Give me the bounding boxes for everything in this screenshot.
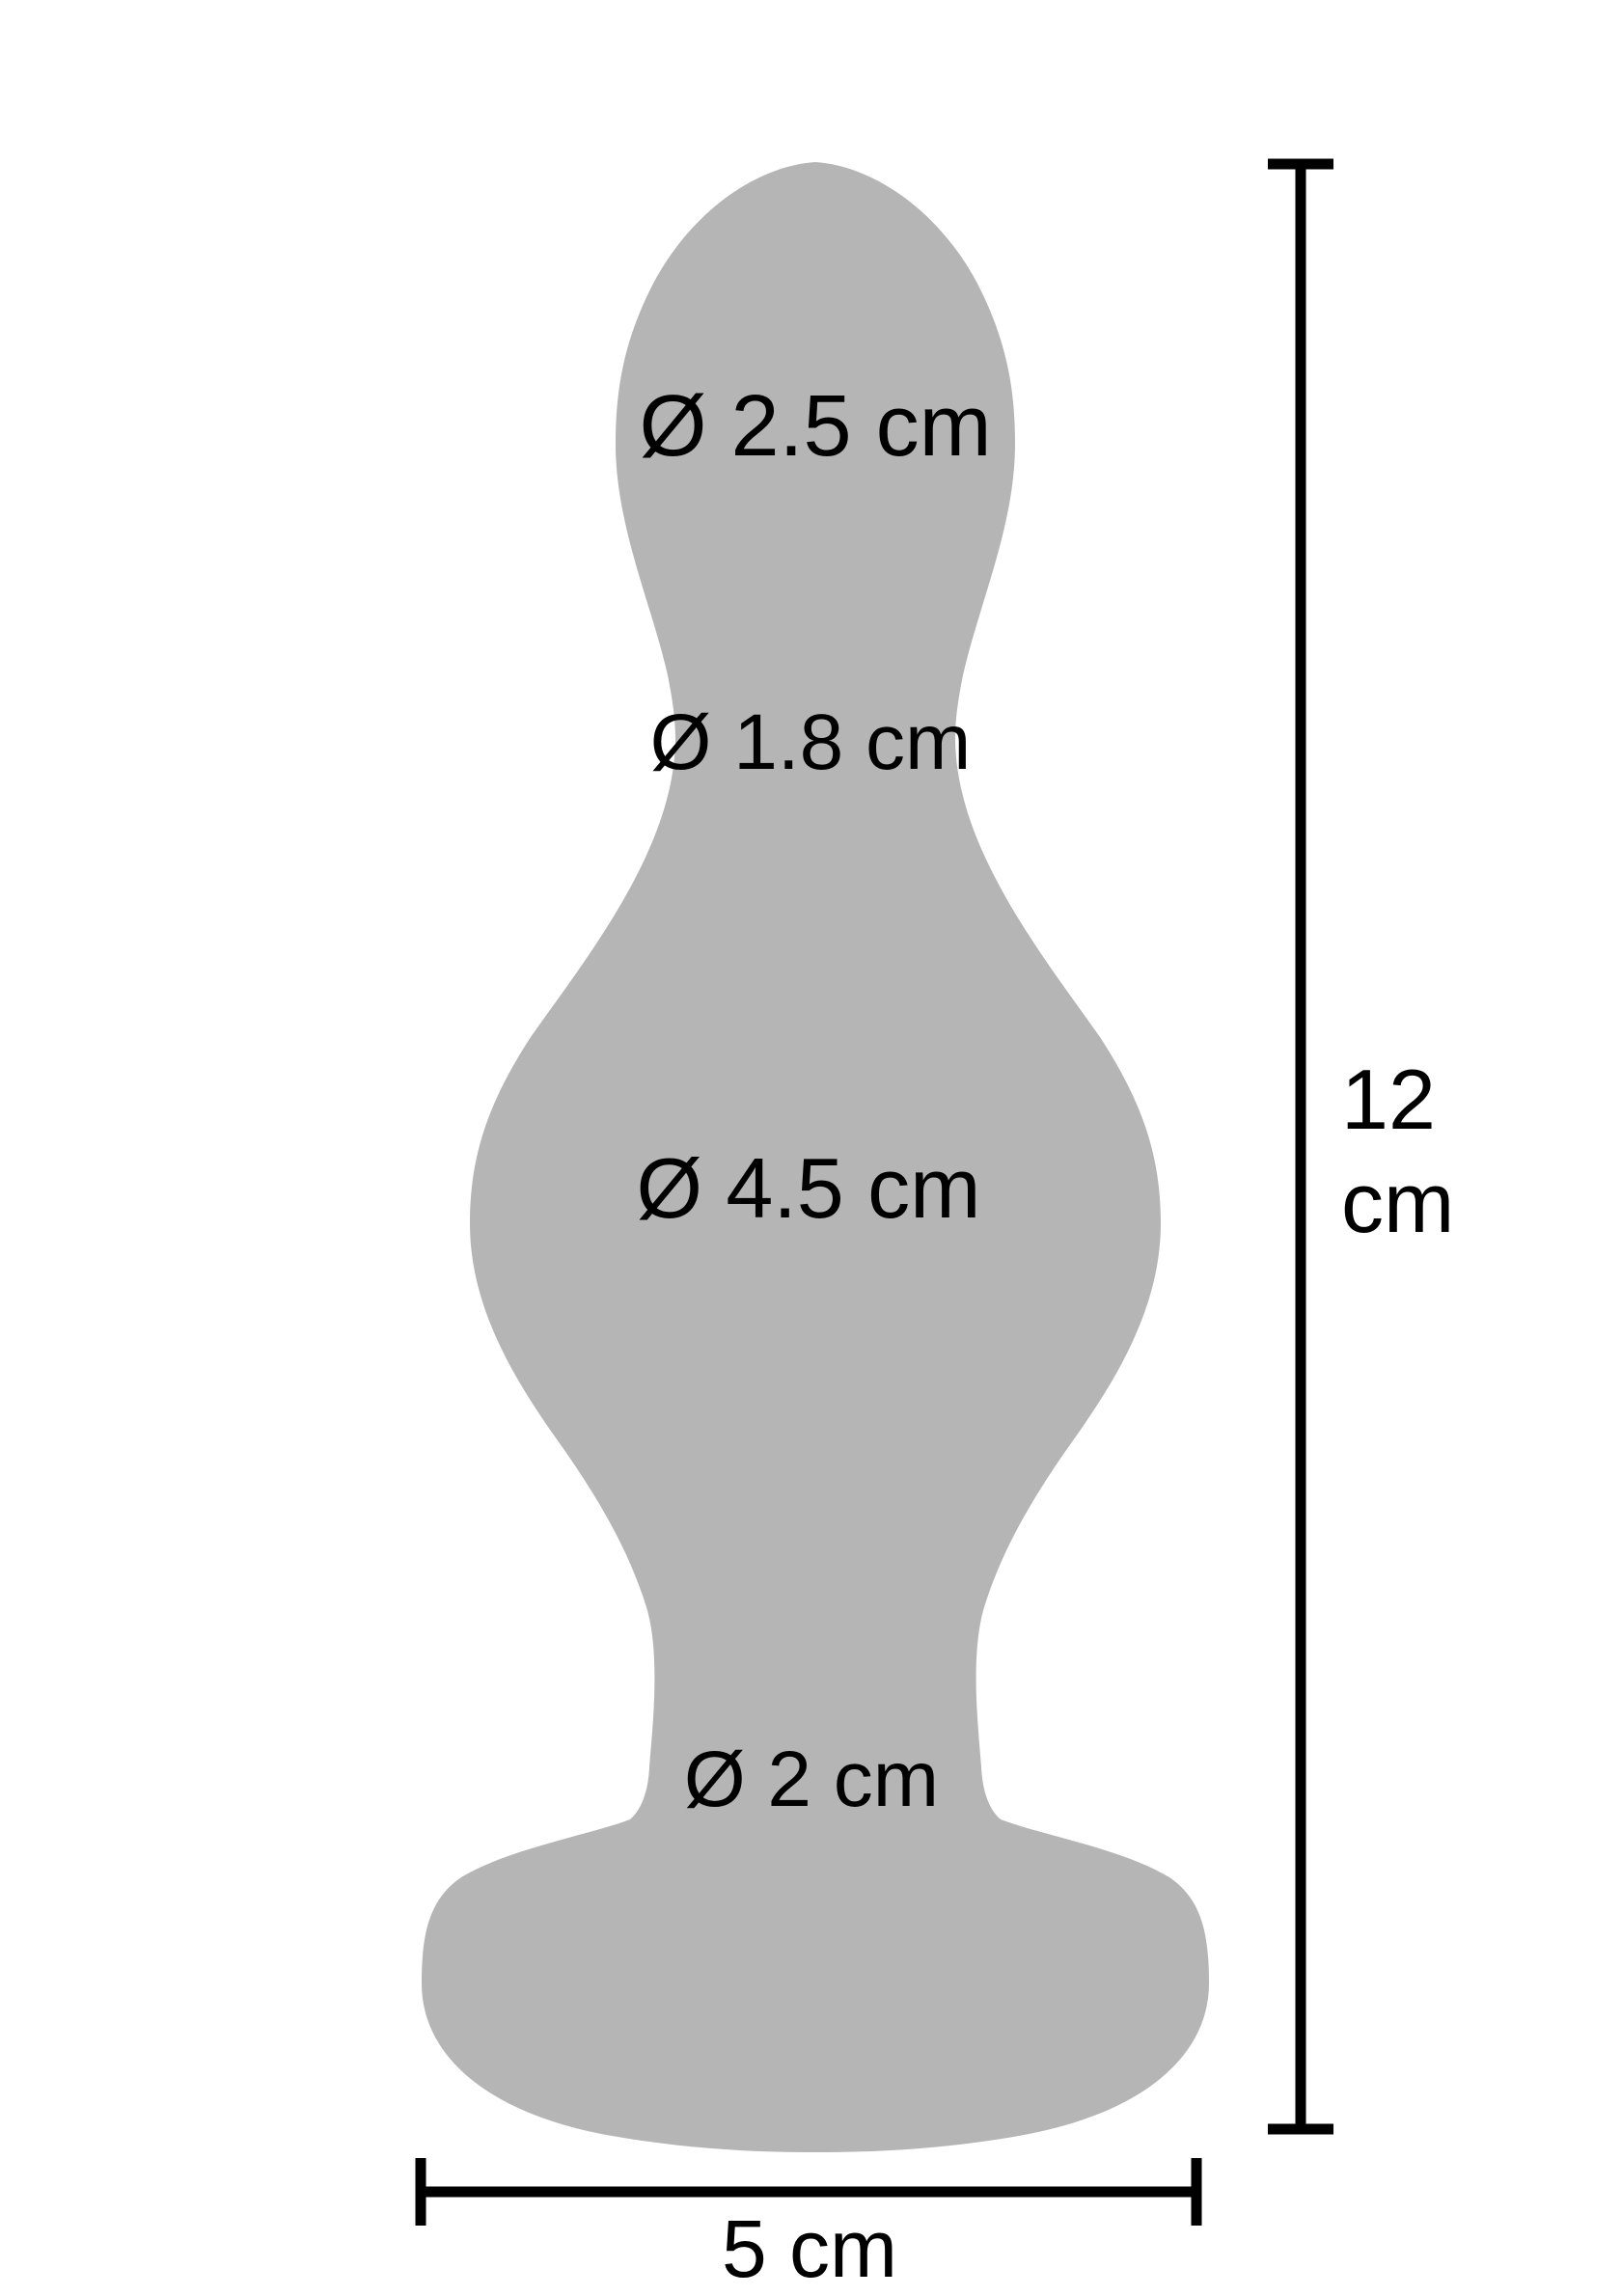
base-width-label: 5 cm <box>722 2203 897 2294</box>
height-unit-label: cm <box>1341 1155 1454 1250</box>
bulge-diameter-label: Ø 4.5 cm <box>637 1140 981 1236</box>
stem-diameter-label: Ø 2 cm <box>684 1736 939 1823</box>
neck-diameter-label: Ø 1.8 cm <box>650 698 972 786</box>
height-dimension <box>1268 164 1333 2129</box>
dimension-diagram: Ø 2.5 cm Ø 1.8 cm Ø 4.5 cm Ø 2 cm 12 cm … <box>0 0 1621 2296</box>
head-diameter-label: Ø 2.5 cm <box>639 378 991 475</box>
dimension-diagram-page: Ø 2.5 cm Ø 1.8 cm Ø 4.5 cm Ø 2 cm 12 cm … <box>0 0 1621 2296</box>
height-value-label: 12 <box>1341 1052 1436 1147</box>
